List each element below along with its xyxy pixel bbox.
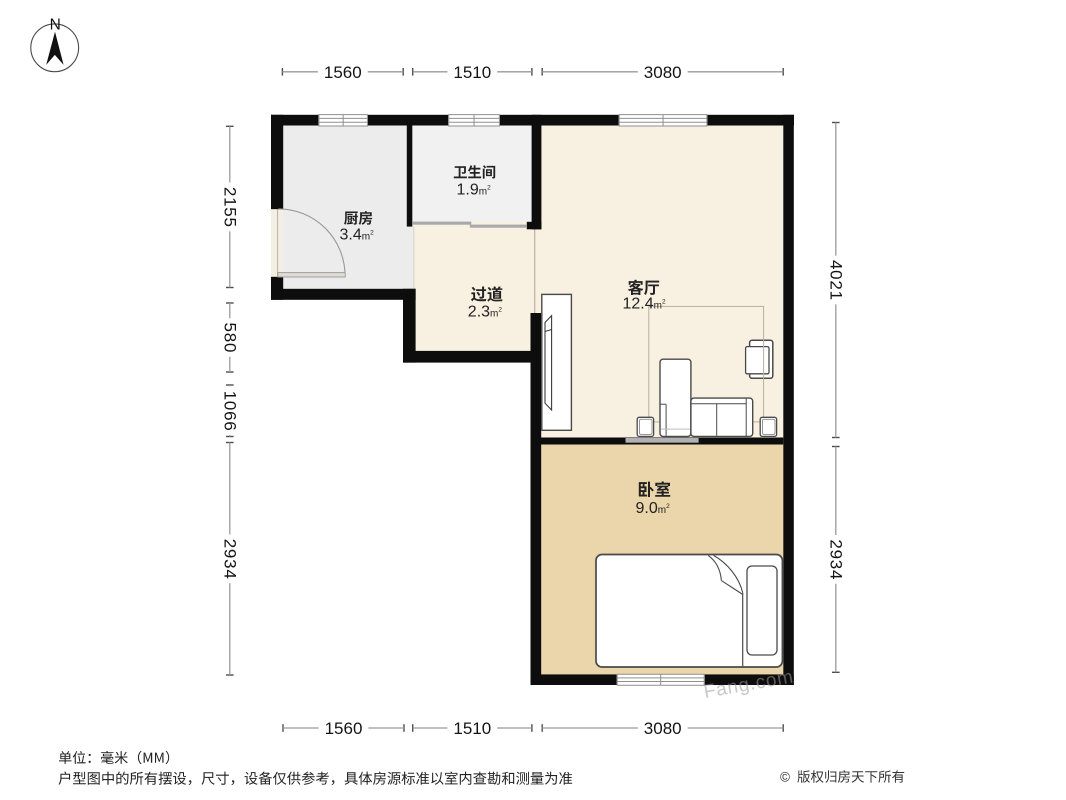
- svg-text:3080: 3080: [644, 63, 682, 82]
- svg-text:2: 2: [220, 539, 239, 548]
- svg-text:5: 5: [220, 207, 239, 216]
- svg-text:9: 9: [826, 550, 845, 559]
- svg-text:2: 2: [826, 539, 845, 548]
- svg-text:5: 5: [220, 217, 239, 226]
- svg-text:3: 3: [826, 560, 845, 569]
- svg-text:1560: 1560: [324, 63, 362, 82]
- svg-text:5: 5: [220, 323, 239, 332]
- svg-text:1: 1: [826, 291, 845, 300]
- svg-text:2: 2: [220, 187, 239, 196]
- svg-text:1: 1: [220, 391, 239, 400]
- svg-text:©: ©: [780, 770, 790, 785]
- svg-text:2: 2: [826, 280, 845, 289]
- svg-text:6: 6: [220, 421, 239, 430]
- svg-text:0: 0: [220, 401, 239, 410]
- svg-text:6: 6: [220, 411, 239, 420]
- svg-text:N: N: [50, 16, 61, 33]
- svg-text:9: 9: [220, 549, 239, 558]
- svg-text:1: 1: [220, 197, 239, 206]
- svg-text:0: 0: [826, 270, 845, 279]
- svg-text:4: 4: [826, 260, 845, 269]
- svg-text:1510: 1510: [453, 719, 491, 738]
- svg-text:4: 4: [220, 569, 239, 578]
- svg-text:1510: 1510: [453, 63, 491, 82]
- svg-text:1560: 1560: [325, 719, 363, 738]
- svg-text:3: 3: [220, 559, 239, 568]
- svg-text:4: 4: [826, 570, 845, 579]
- svg-text:0: 0: [220, 343, 239, 352]
- svg-text:3080: 3080: [644, 719, 682, 738]
- svg-text:8: 8: [220, 333, 239, 342]
